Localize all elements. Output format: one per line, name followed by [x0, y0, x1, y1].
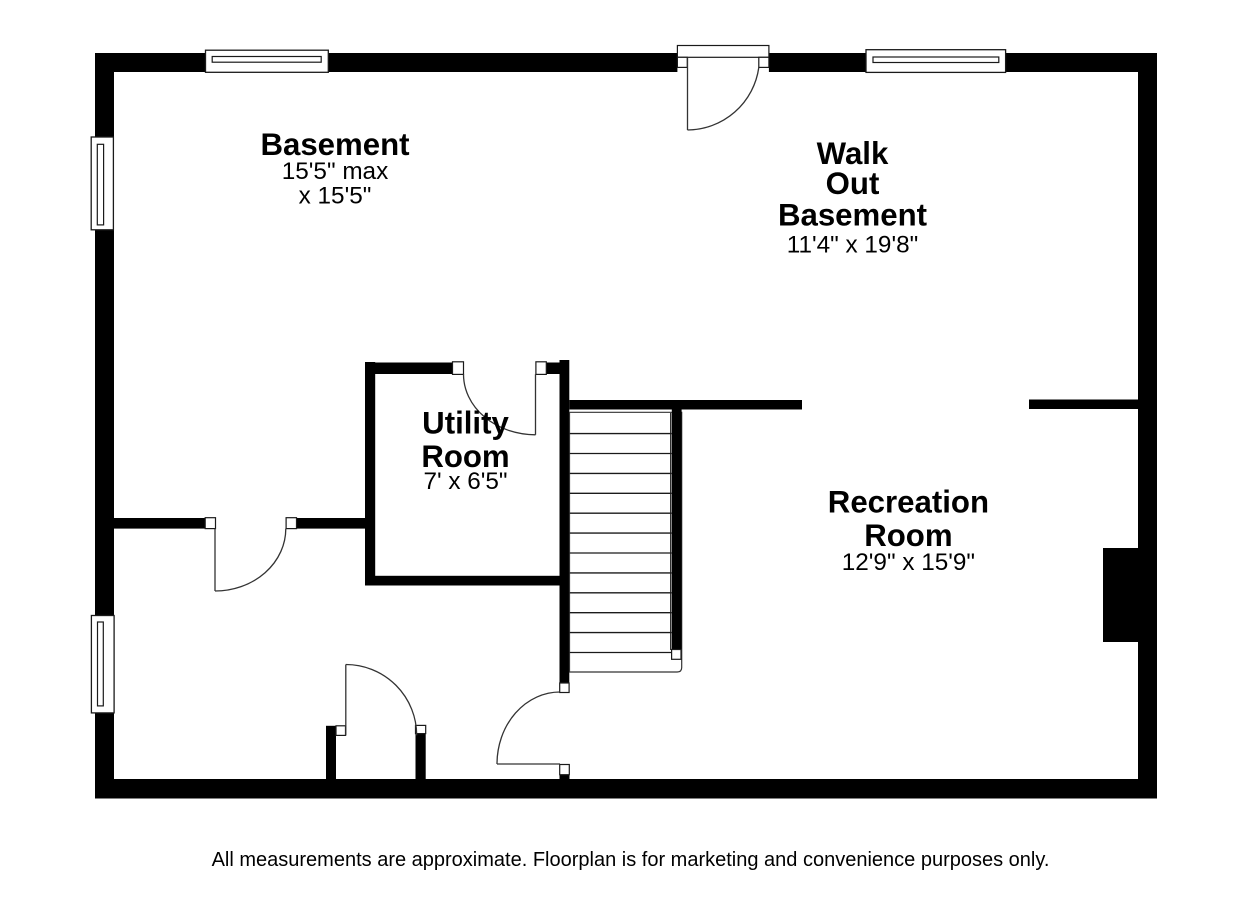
svg-text:x 15'5": x 15'5" [299, 183, 372, 210]
svg-text:Utility: Utility [422, 406, 509, 441]
svg-text:11'4" x 19'8": 11'4" x 19'8" [787, 232, 918, 259]
svg-text:Basement: Basement [260, 127, 409, 162]
svg-text:15'5" max: 15'5" max [282, 158, 388, 185]
svg-text:Recreation: Recreation [828, 484, 989, 519]
svg-text:Basement: Basement [778, 198, 927, 233]
svg-text:All measurements are approxima: All measurements are approximate. Floorp… [212, 849, 1050, 871]
svg-text:Room: Room [864, 518, 952, 553]
svg-text:7' x 6'5": 7' x 6'5" [423, 468, 507, 495]
svg-text:12'9" x 15'9": 12'9" x 15'9" [842, 549, 975, 576]
svg-text:Out: Out [826, 166, 880, 201]
